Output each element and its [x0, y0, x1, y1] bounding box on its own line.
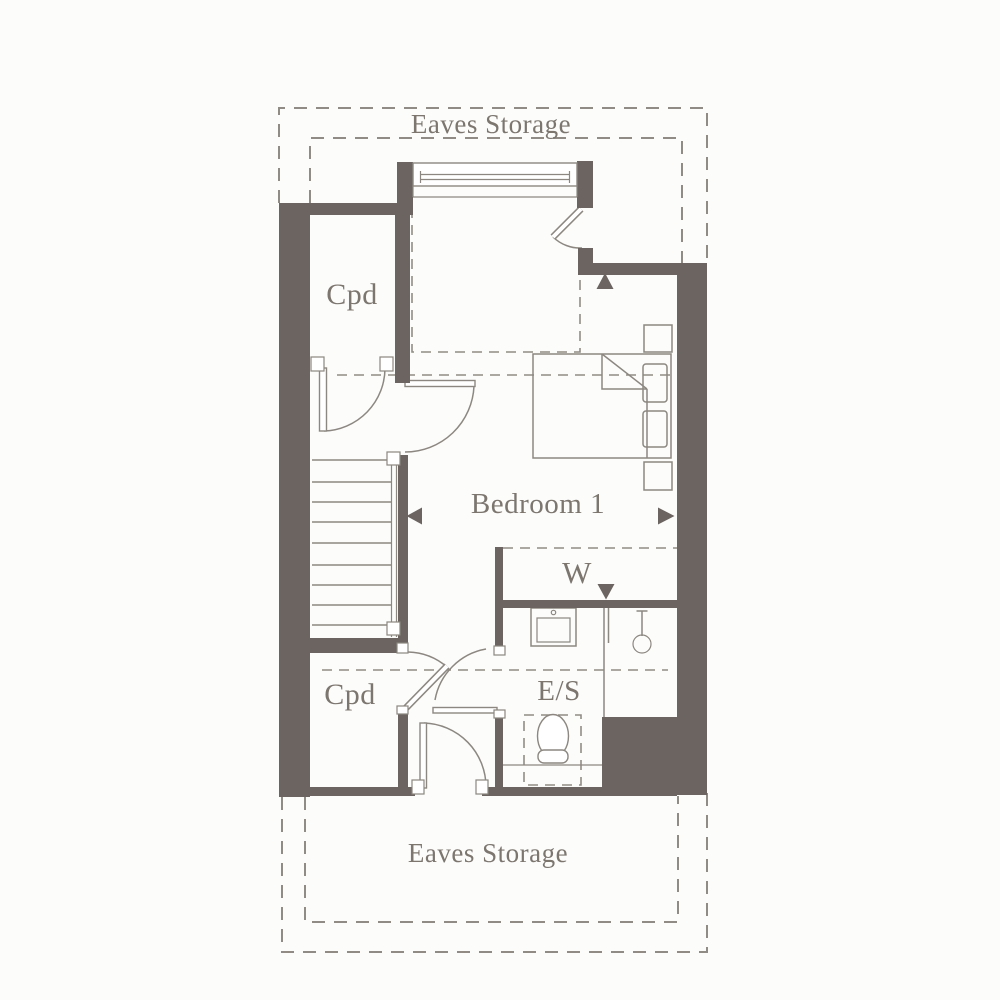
door-swing-arc: [405, 386, 474, 452]
slope-arrow-left-icon: [407, 508, 423, 525]
nightstand: [644, 462, 672, 490]
door-leaf: [433, 708, 497, 714]
door-jamb: [311, 357, 324, 371]
ensuite-label: E/S: [537, 675, 580, 707]
door-jamb: [397, 643, 408, 653]
cupboard-bottom-label: Cpd: [324, 678, 376, 711]
wall-bedroom-door-stub: [578, 248, 593, 275]
wall-cupboard-top: [279, 203, 400, 215]
door-leaf: [420, 723, 427, 788]
wall-wardrobe-bottom: [495, 600, 677, 608]
door-jamb: [494, 646, 505, 655]
slope-arrow-right-icon: [658, 508, 675, 525]
floor-plan-canvas: Eaves Storage Cpd Bedroom 1 W Cpd E/S Ea…: [0, 0, 1000, 1000]
sink-basin-inner: [537, 618, 570, 642]
sink: [531, 608, 576, 646]
door-swing-arc: [424, 723, 486, 787]
door-bedroom-landing: [405, 381, 475, 453]
bed: [533, 354, 671, 458]
wall-stair-bedroom: [398, 455, 408, 648]
door-leaf: [320, 368, 327, 431]
slope-arrow-down-icon: [598, 584, 615, 600]
door-leaf-face: [553, 209, 581, 237]
wall-ensuite-upper-stub: [495, 547, 503, 652]
wardrobe-label: W: [562, 555, 592, 590]
wall-bottom-right-mass: [602, 717, 677, 796]
wall-cupboard-bottom-right: [398, 712, 408, 790]
door-leaf-face: [403, 666, 447, 711]
sink-tap: [551, 610, 555, 614]
door-eaves-access: [420, 723, 486, 788]
eaves-storage-bottom-zone: [282, 793, 707, 952]
door-jamb: [476, 780, 488, 794]
door-jamb: [397, 706, 408, 714]
wall-below-stairs: [310, 638, 408, 653]
stair-newel-post: [387, 622, 400, 635]
wall-right: [677, 263, 707, 795]
door-swing-arc: [408, 652, 447, 667]
toilet-seat: [538, 750, 568, 763]
slope-arrow-up-icon: [597, 273, 614, 289]
reduced-headroom-boundary: [412, 208, 580, 352]
nightstand: [644, 325, 672, 352]
sink-basin-outer: [531, 608, 576, 646]
wall-window-right-stub: [577, 161, 593, 208]
door-swing-arc: [324, 368, 385, 431]
window-top: [413, 163, 577, 197]
bedroom-label: Bedroom 1: [471, 488, 605, 520]
door-ensuite: [433, 649, 497, 713]
cupboard-top-label: Cpd: [326, 278, 378, 311]
door-cupboard-top: [320, 368, 386, 431]
eaves-storage-bottom-label: Eaves Storage: [408, 838, 568, 868]
shower: [604, 608, 651, 717]
door-leaf: [405, 381, 475, 387]
toilet: [538, 715, 569, 764]
door-jamb: [412, 780, 424, 794]
floor-plan: Eaves Storage Cpd Bedroom 1 W Cpd E/S Ea…: [0, 0, 1000, 1000]
stairs: [312, 455, 397, 637]
duvet-fold-diagonal: [602, 354, 647, 389]
wall-bottom-ensuite: [482, 787, 603, 796]
door-cupboard-bottom: [403, 652, 447, 711]
shower-head: [633, 635, 651, 653]
wall-ensuite-lower-stub: [495, 712, 503, 790]
door-jamb: [380, 357, 393, 371]
eaves-top-inner-boundary: [310, 138, 682, 263]
door-bedroom-top: [553, 209, 582, 248]
eaves-storage-top-label: Eaves Storage: [411, 109, 571, 139]
eaves-bottom-outer-boundary: [282, 793, 707, 952]
wall-left: [279, 203, 310, 797]
wall-cupboard-top-right: [395, 203, 410, 383]
door-swing-arc: [553, 237, 582, 248]
stair-newel-post: [387, 452, 400, 465]
door-jamb: [494, 710, 505, 718]
wall-bottom-left: [279, 787, 415, 796]
